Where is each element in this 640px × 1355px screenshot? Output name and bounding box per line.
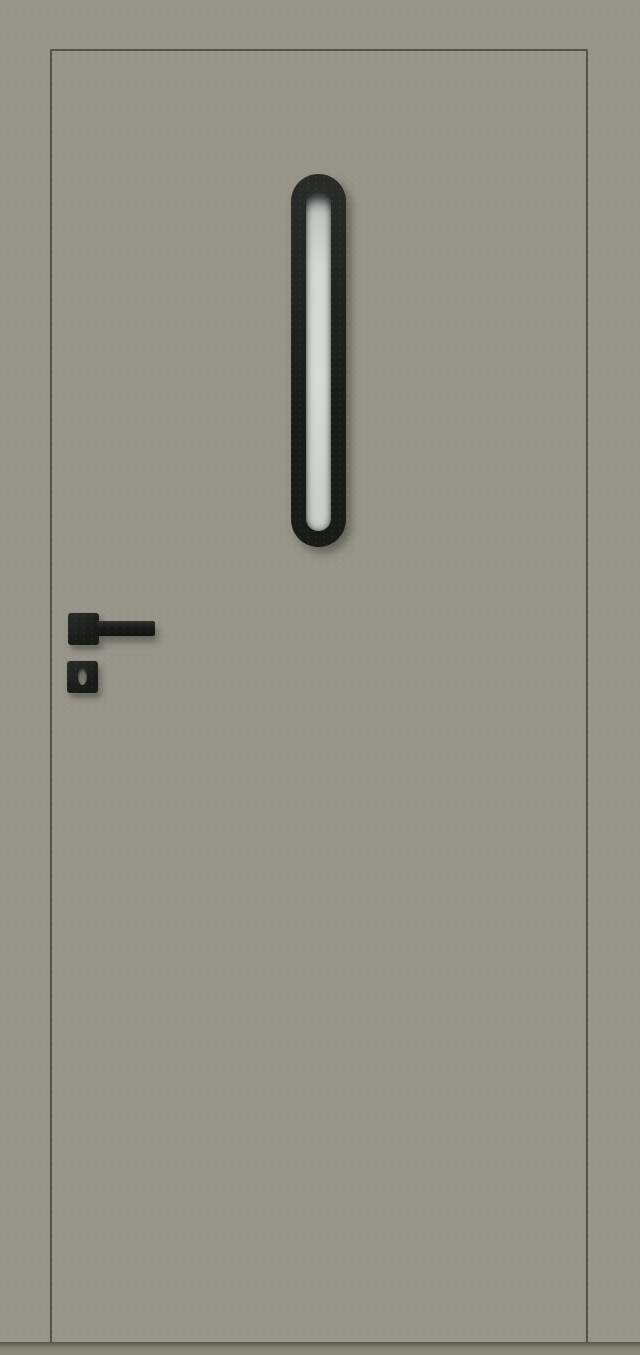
door-frame-surround bbox=[0, 0, 640, 1355]
keyhole bbox=[78, 668, 87, 685]
glazing-frame bbox=[291, 174, 346, 547]
floor-shadow bbox=[0, 1342, 640, 1355]
handle-rosette bbox=[68, 613, 99, 645]
keyhole-escutcheon bbox=[67, 661, 98, 693]
door-handle-lever bbox=[97, 621, 155, 636]
glass-panel bbox=[306, 190, 331, 531]
